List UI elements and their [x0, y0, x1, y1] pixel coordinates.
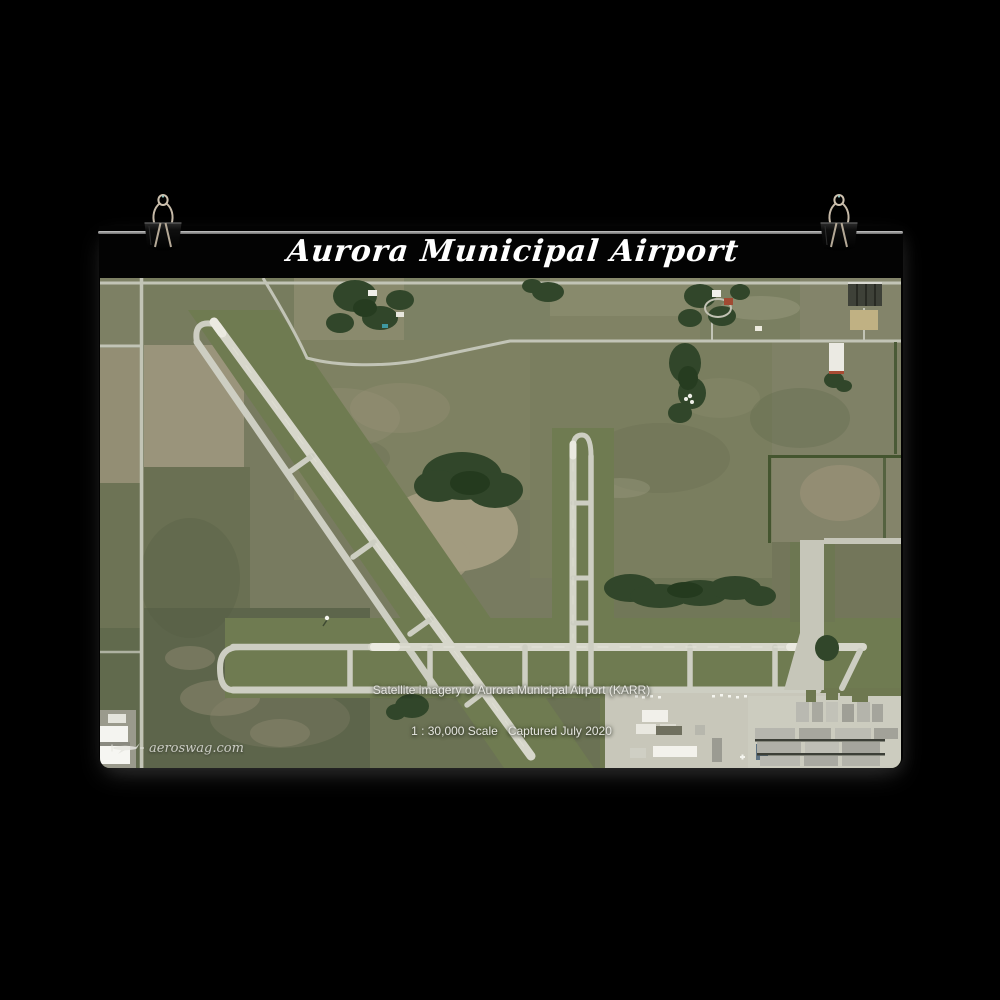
binder-clip-left: [141, 193, 185, 255]
poster-title: Aurora Municipal Airport: [285, 234, 741, 269]
clip-body: [145, 223, 182, 251]
warehouses: [100, 710, 136, 768]
airplane-icon: [110, 740, 144, 756]
map-caption: Satellite imagery of Aurora Municipal Ai…: [373, 657, 650, 765]
hanging-wire: [98, 231, 903, 234]
poster-mockup-scene: Aurora Municipal Airport: [0, 0, 1000, 1000]
clip-handle: [153, 195, 172, 224]
watermark-text: aeroswag.com: [149, 741, 244, 756]
clip-handle: [829, 195, 848, 224]
clip-body: [821, 223, 858, 251]
satellite-image: Satellite imagery of Aurora Municipal Ai…: [100, 278, 901, 768]
caption-line-1: Satellite imagery of Aurora Municipal Ai…: [373, 684, 650, 698]
poster: Aurora Municipal Airport: [99, 226, 903, 768]
watermark: aeroswag.com: [110, 740, 244, 756]
binder-clip-right: [817, 193, 861, 255]
caption-line-2: 1 : 30,000 Scale Captured July 2020: [373, 725, 650, 739]
